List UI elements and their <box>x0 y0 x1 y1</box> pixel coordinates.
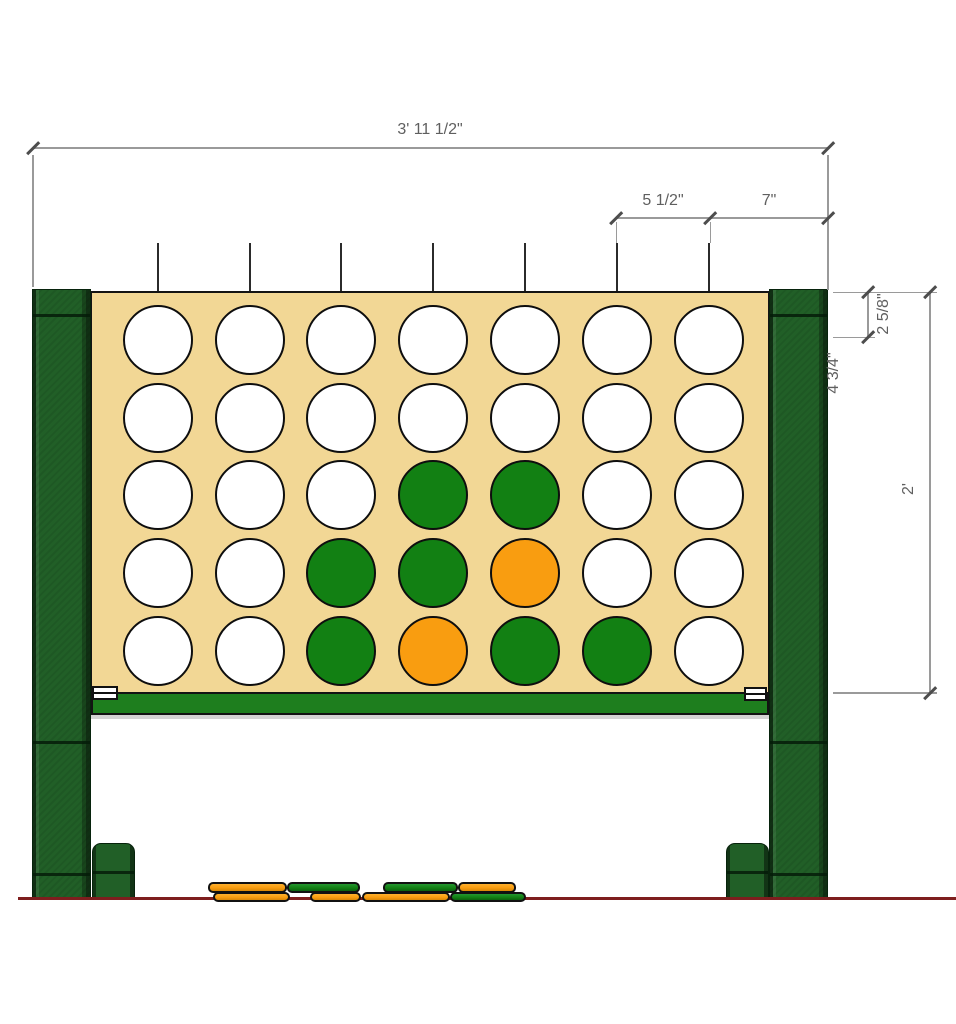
dim-label-board-height: 2' <box>900 449 918 529</box>
column-slot-line <box>524 243 526 291</box>
post-seam <box>33 314 90 317</box>
ground-disc-orange <box>213 892 290 902</box>
dim-label-hole-spacing: 5 1/2" <box>613 192 713 210</box>
game-disc-green <box>398 460 468 530</box>
ground-disc-orange <box>310 892 361 902</box>
board-hole-empty <box>123 538 193 608</box>
right-post <box>769 289 828 900</box>
dim-line-spacing <box>616 217 828 219</box>
ground-disc-orange <box>362 892 450 902</box>
column-slot-line <box>432 243 434 291</box>
game-disc-green <box>490 460 560 530</box>
technical-drawing-canvas: 3' 11 1/2" 5 1/2" 7" 2 5/8" 4 3/4" 2' <box>0 0 956 1024</box>
bottom-rail-shadow <box>91 715 769 719</box>
board-hole-empty <box>215 383 285 453</box>
column-slot-line <box>157 243 159 291</box>
board-hole-empty <box>674 383 744 453</box>
post-seam <box>33 741 90 744</box>
game-disc-green <box>398 538 468 608</box>
board-hole-empty <box>215 305 285 375</box>
game-disc-orange <box>490 538 560 608</box>
foot-seam <box>727 871 768 874</box>
game-disc-green <box>306 616 376 686</box>
dim-line-board-height <box>929 292 931 693</box>
post-seam <box>770 873 827 876</box>
extension-line <box>833 692 937 694</box>
right-foot-block <box>726 843 769 900</box>
board-hole-empty <box>490 305 560 375</box>
board-hole-empty <box>582 383 652 453</box>
dim-label-overall-width: 3' 11 1/2" <box>330 121 530 139</box>
bottom-rail <box>91 692 769 715</box>
right-latch <box>744 687 767 701</box>
board-hole-empty <box>582 538 652 608</box>
dim-label-top-margin: 2 5/8" <box>875 254 893 374</box>
post-seam <box>33 873 90 876</box>
column-slot-line <box>708 243 710 291</box>
board-hole-empty <box>123 305 193 375</box>
game-disc-green <box>490 616 560 686</box>
board-hole-empty <box>674 538 744 608</box>
board-hole-empty <box>582 305 652 375</box>
foot-seam <box>93 871 134 874</box>
dim-label-side-width: 7" <box>719 192 819 210</box>
column-slot-line <box>249 243 251 291</box>
post-seam <box>770 741 827 744</box>
dim-line-top-margin <box>867 292 869 337</box>
board-hole-empty <box>123 616 193 686</box>
extension-line <box>32 155 34 287</box>
game-disc-green <box>582 616 652 686</box>
left-foot-block <box>92 843 135 900</box>
post-seam <box>770 314 827 317</box>
board-hole-empty <box>215 616 285 686</box>
ground-disc-green <box>450 892 526 902</box>
board-hole-empty <box>306 305 376 375</box>
board-hole-empty <box>123 460 193 530</box>
board-hole-empty <box>123 383 193 453</box>
board-hole-empty <box>674 460 744 530</box>
board-hole-empty <box>674 305 744 375</box>
board-hole-empty <box>582 460 652 530</box>
board-hole-empty <box>215 538 285 608</box>
board-hole-empty <box>490 383 560 453</box>
left-latch <box>92 686 118 700</box>
board-hole-empty <box>674 616 744 686</box>
board-hole-empty <box>306 383 376 453</box>
dim-line-overall-width <box>33 147 828 149</box>
left-post <box>32 289 91 900</box>
extension-line <box>616 222 618 243</box>
dim-label-upper-offset: 4 3/4" <box>825 313 843 433</box>
game-disc-orange <box>398 616 468 686</box>
column-slot-line <box>340 243 342 291</box>
extension-line <box>710 222 712 243</box>
board-hole-empty <box>306 460 376 530</box>
column-slot-line <box>616 243 618 291</box>
game-disc-green <box>306 538 376 608</box>
extension-line <box>827 155 829 290</box>
board-hole-empty <box>398 383 468 453</box>
board-hole-empty <box>398 305 468 375</box>
board-hole-empty <box>215 460 285 530</box>
